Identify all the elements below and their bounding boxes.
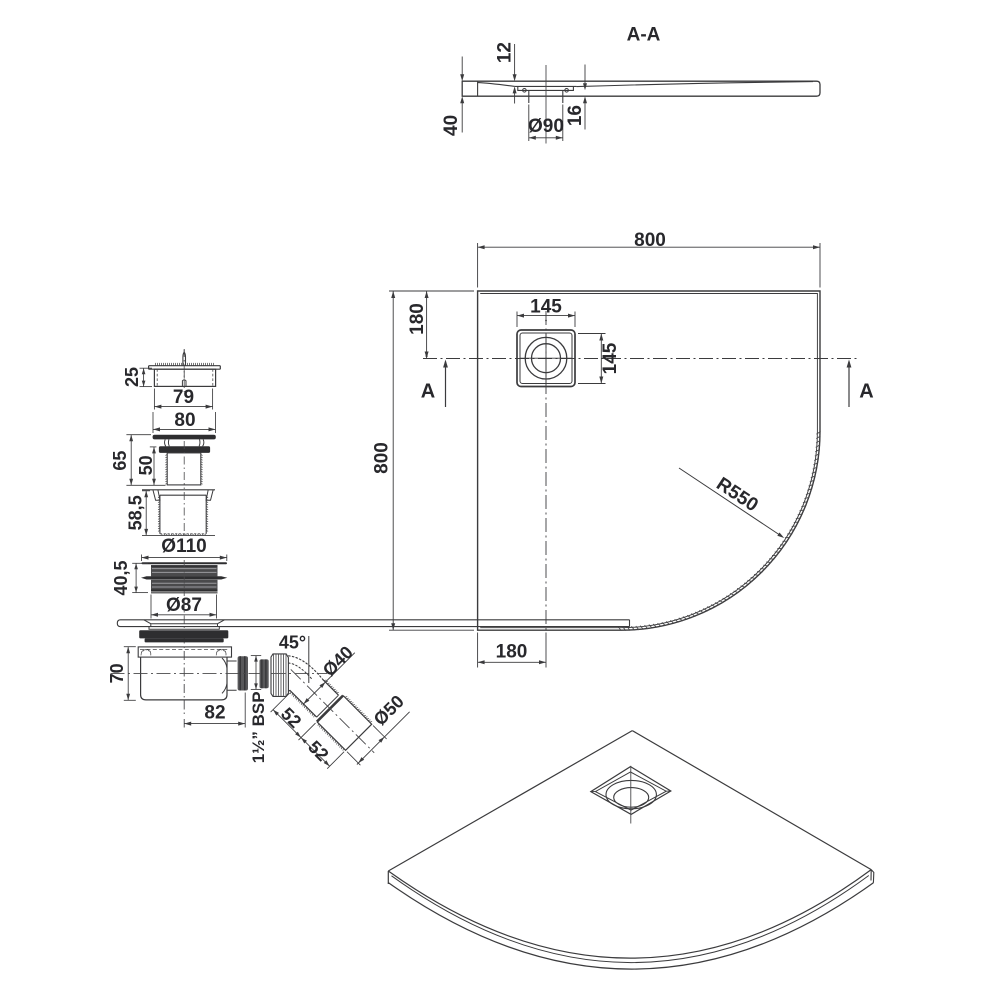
svg-text:50: 50 — [136, 455, 156, 475]
svg-text:65: 65 — [110, 451, 130, 471]
svg-text:800: 800 — [371, 442, 392, 474]
svg-text:145: 145 — [600, 342, 621, 374]
svg-text:45°: 45° — [279, 633, 306, 653]
svg-text:A: A — [421, 381, 435, 403]
svg-text:12: 12 — [495, 42, 516, 63]
svg-text:80: 80 — [174, 410, 195, 431]
svg-text:Ø50: Ø50 — [370, 691, 408, 729]
svg-text:16: 16 — [565, 105, 586, 126]
svg-text:Ø40: Ø40 — [319, 642, 357, 680]
svg-text:R550: R550 — [712, 474, 761, 517]
svg-text:180: 180 — [407, 303, 428, 335]
svg-text:70: 70 — [107, 663, 127, 683]
svg-text:58,5: 58,5 — [125, 495, 145, 530]
svg-text:A-A: A-A — [627, 25, 661, 46]
svg-text:1½” BSP: 1½” BSP — [249, 691, 268, 763]
svg-text:79: 79 — [173, 387, 194, 408]
svg-text:145: 145 — [530, 296, 562, 317]
svg-text:A: A — [859, 381, 873, 403]
svg-text:82: 82 — [204, 703, 225, 724]
svg-text:40,5: 40,5 — [111, 560, 131, 595]
svg-text:52: 52 — [277, 704, 305, 732]
svg-text:Ø110: Ø110 — [161, 536, 206, 557]
svg-text:25: 25 — [122, 367, 142, 387]
svg-text:Ø90: Ø90 — [528, 116, 564, 137]
svg-text:180: 180 — [496, 641, 528, 662]
svg-text:800: 800 — [634, 230, 666, 251]
svg-text:52: 52 — [304, 737, 332, 765]
svg-text:40: 40 — [441, 115, 462, 136]
